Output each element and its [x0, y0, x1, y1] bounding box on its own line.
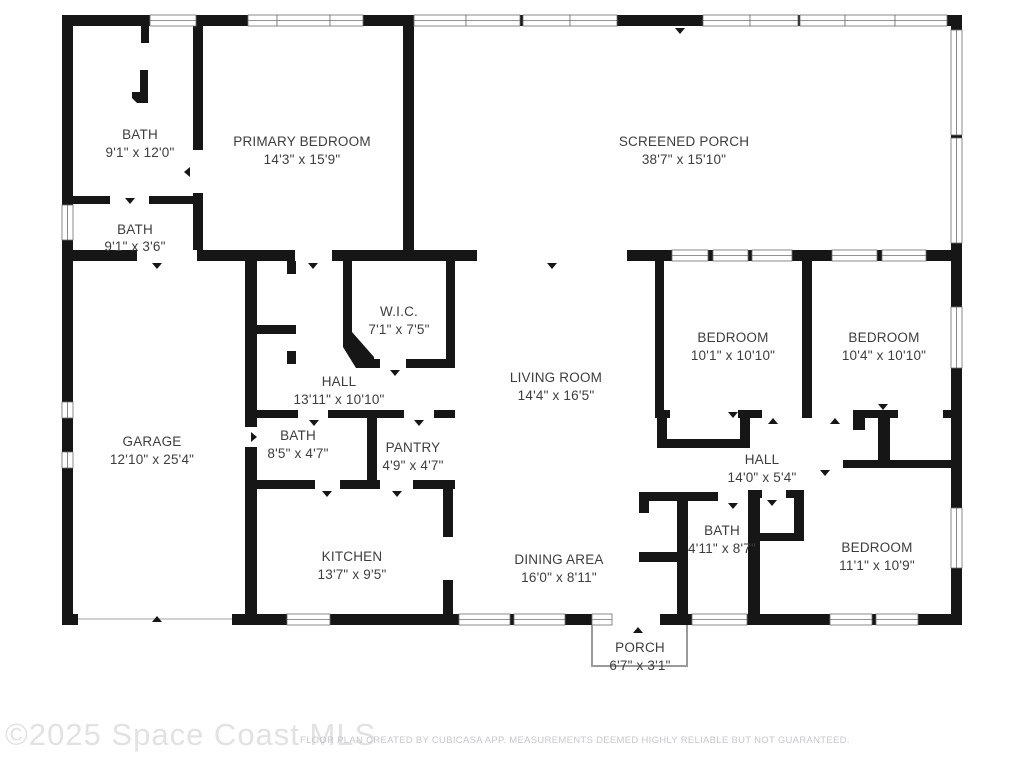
room-dims-wic: 7'1" x 7'5": [368, 322, 429, 337]
room-label-hall: HALL: [322, 374, 357, 389]
room-dims-bedroom2: 10'4" x 10'10": [842, 348, 926, 363]
room-dims-hall: 13'11" x 10'10": [293, 392, 384, 407]
room-label-bedroom2: BEDROOM: [848, 330, 919, 345]
room-label-garage: GARAGE: [123, 434, 182, 449]
room-label-bath-hall: BATH: [280, 428, 316, 443]
room-label-hall2: HALL: [745, 452, 780, 467]
door-arrows: [125, 28, 888, 633]
room-label-dining: DINING AREA: [514, 552, 603, 567]
room-dims-hall2: 14'0" x 5'4": [728, 470, 797, 485]
room-label-pantry: PANTRY: [386, 440, 441, 455]
room-dims-primary: 14'3" x 15'9": [264, 152, 341, 167]
room-label-bath-small: BATH: [117, 222, 153, 237]
room-label-bath3: BATH: [704, 523, 740, 538]
room-dims-bath-top: 9'1" x 12'0": [106, 145, 175, 160]
room-label-primary: PRIMARY BEDROOM: [233, 134, 371, 149]
room-dims-bath-small: 9'1" x 3'6": [104, 239, 165, 254]
room-dims-porch-top: 38'7" x 15'10": [642, 152, 726, 167]
room-label-living: LIVING ROOM: [510, 370, 602, 385]
room-label-bedroom3: BEDROOM: [841, 540, 912, 555]
room-dims-bedroom1: 10'1" x 10'10": [691, 348, 775, 363]
room-dims-bedroom3: 11'1" x 10'9": [839, 558, 915, 573]
room-label-porch: PORCH: [615, 640, 665, 655]
room-dims-pantry: 4'9" x 4'7": [382, 458, 443, 473]
room-label-wic: W.I.C.: [380, 304, 418, 319]
room-dims-bath-hall: 8'5" x 4'7": [267, 446, 328, 461]
room-label-porch-top: SCREENED PORCH: [619, 134, 749, 149]
floor-plan: BATH 9'1" x 12'0" PRIMARY BEDROOM 14'3" …: [0, 0, 1024, 768]
room-dims-living: 14'4" x 16'5": [518, 388, 595, 403]
room-dims-porch: 6'7" x 3'1": [609, 658, 670, 673]
room-label-bath-top: BATH: [122, 127, 158, 142]
room-dims-garage: 12'10" x 25'4": [110, 452, 194, 467]
room-dims-bath3: 4'11" x 8'7": [688, 541, 756, 556]
room-label-kitchen: KITCHEN: [322, 549, 383, 564]
room-dims-dining: 16'0" x 8'11": [521, 570, 597, 585]
walls: [62, 15, 962, 625]
disclaimer-text: FLOOR PLAN CREATED BY CUBICASA APP. MEAS…: [300, 735, 850, 746]
room-dims-kitchen: 13'7" x 9'5": [318, 567, 387, 582]
room-label-bedroom1: BEDROOM: [697, 330, 768, 345]
